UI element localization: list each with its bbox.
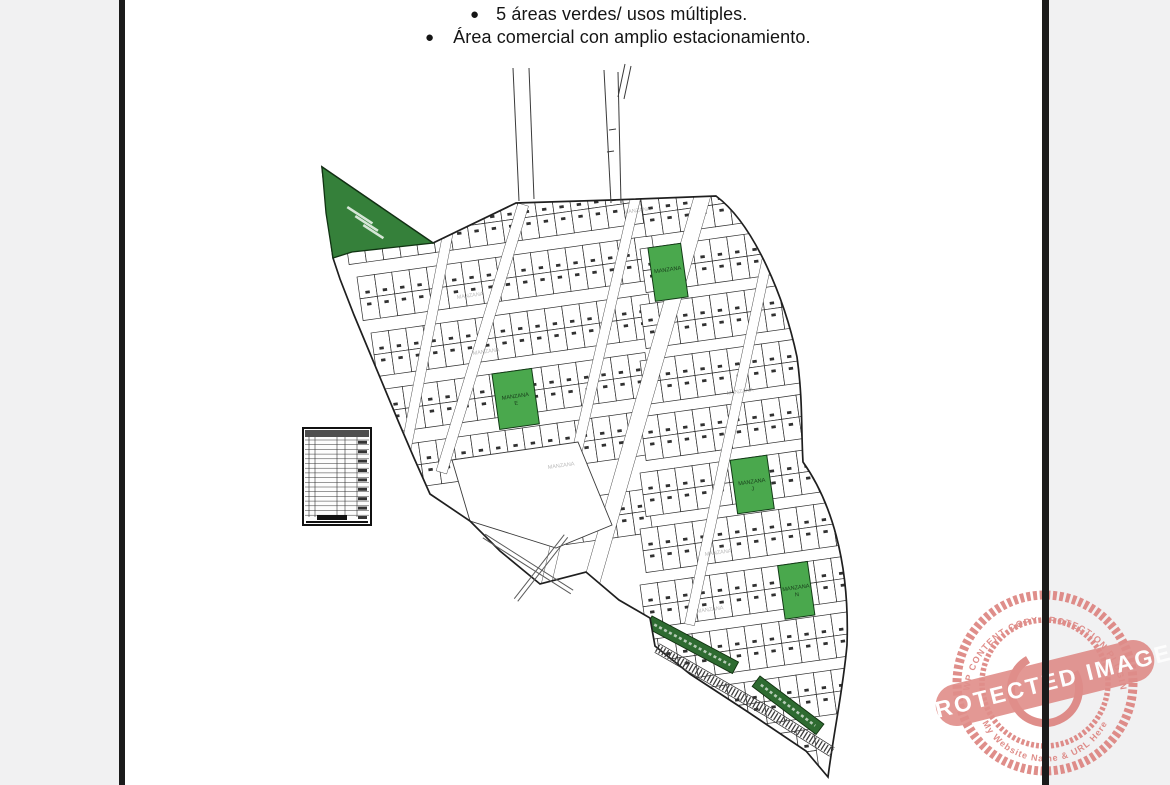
page-edge-bar-right: [1042, 0, 1049, 785]
green-block: MANZANAJ: [730, 455, 774, 514]
bullet-dot: ●: [470, 6, 479, 24]
bullet-item-area-comercial: ● Área comercial con amplio estacionamie…: [425, 27, 811, 48]
bullet-dot: ●: [425, 29, 434, 47]
access-roads: [513, 64, 631, 203]
lot-fabric: MANZANAMANZANAEMANZANAJMANZANANMANZANAMA…: [343, 159, 889, 785]
svg-text:N: N: [795, 592, 800, 599]
page-edge-bar-left: [119, 0, 125, 785]
green-block: MANZANAE: [492, 368, 539, 429]
green-wedge: [322, 167, 433, 258]
legend-table: [303, 428, 371, 525]
bullet-text: 5 áreas verdes/ usos múltiples.: [496, 4, 747, 25]
lot-band: [640, 663, 889, 741]
bullet-text: Área comercial con amplio estacionamient…: [453, 27, 810, 48]
document-page: { "page": {"background":"#f1f1f2","paper…: [0, 0, 1170, 785]
subdivision-plan-map: MANZANAMANZANAEMANZANAJMANZANANMANZANAMA…: [0, 0, 1170, 785]
green-block: MANZANA: [648, 243, 688, 301]
lot-band: [640, 729, 819, 785]
bullet-item-areas-verdes: ● 5 áreas verdes/ usos múltiples.: [470, 4, 747, 25]
